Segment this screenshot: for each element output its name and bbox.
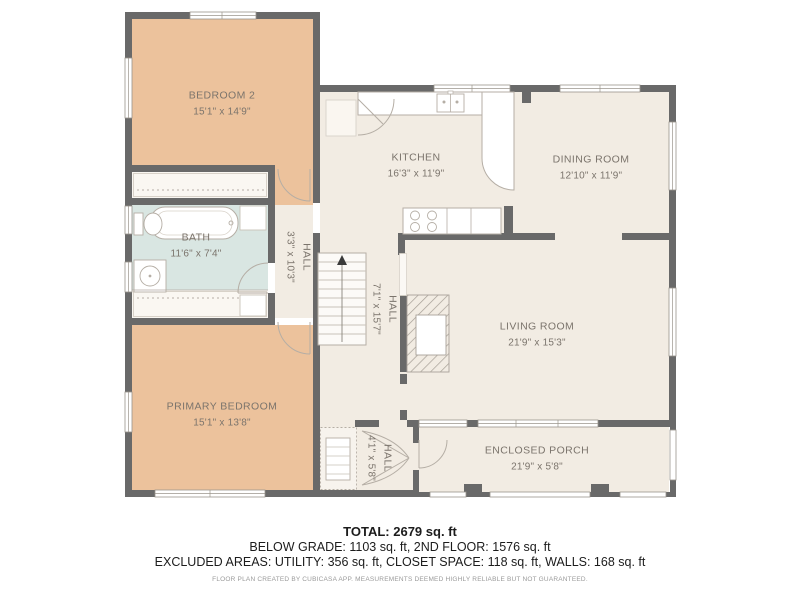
window [490, 492, 590, 497]
firebox [416, 315, 446, 355]
area-summary: TOTAL: 2679 sq. ft BELOW GRADE: 1103 sq.… [0, 524, 800, 583]
fireplace [407, 295, 449, 372]
kitchen-peninsula [482, 92, 514, 190]
excluded-area: EXCLUDED AREAS: UTILITY: 356 sq. ft, CLO… [0, 555, 800, 569]
room-name: PRIMARY BEDROOM [167, 400, 278, 416]
room-label-hall-upper: HALL 3'3" x 10'3" [283, 231, 314, 283]
room-label-bedroom2: BEDROOM 2 15'1" x 14'9" [189, 89, 256, 120]
room-dims: 12'10" x 11'9" [553, 168, 630, 183]
room-name: LIVING ROOM [500, 320, 574, 336]
entry-alcove [326, 100, 356, 136]
floors-area: BELOW GRADE: 1103 sq. ft, 2ND FLOOR: 157… [0, 540, 800, 554]
floor-plan-page: BEDROOM 2 15'1" x 14'9" KITCHEN 16'3" x … [0, 0, 800, 600]
room-label-dining: DINING ROOM 12'10" x 11'9" [553, 153, 630, 184]
room-dims: 3'3" x 10'3" [283, 231, 298, 283]
sink-faucet [448, 91, 453, 94]
window [620, 492, 666, 497]
room-dims: 21'9" x 15'3" [500, 335, 574, 350]
room-label-hall-main: HALL 7'1" x 15'7" [369, 283, 400, 335]
room-name: BATH [171, 231, 222, 247]
room-dims: 21'9" x 5'8" [485, 459, 589, 474]
cased-opening [400, 254, 407, 296]
closet-a-floor [132, 172, 268, 198]
room-label-hall-lower: HALL 4'1" x 5'8" [364, 435, 395, 481]
island-wall-stub [504, 206, 513, 234]
floor-plan-canvas [0, 0, 800, 600]
room-name: KITCHEN [388, 151, 445, 167]
room-label-primary: PRIMARY BEDROOM 15'1" x 13'8" [167, 400, 278, 431]
room-dims: 16'3" x 11'9" [388, 166, 445, 181]
room-dims: 11'6" x 7'4" [171, 246, 222, 261]
toilet-tank [134, 213, 143, 235]
bedroom2-vestibule-floor [275, 165, 313, 205]
window [430, 492, 466, 497]
room-name: DINING ROOM [553, 153, 630, 169]
room-name: HALL [379, 435, 395, 481]
porch-post [591, 484, 609, 497]
room-name: HALL [384, 283, 400, 335]
toilet-bowl [144, 213, 162, 235]
room-label-bath: BATH 11'6" x 7'4" [171, 231, 222, 262]
bath-closet [240, 295, 266, 316]
room-label-living: LIVING ROOM 21'9" x 15'3" [500, 320, 574, 351]
room-name: ENCLOSED PORCH [485, 444, 589, 460]
room-name: HALL [298, 231, 314, 283]
room-dims: 15'1" x 14'9" [189, 104, 256, 119]
room-label-kitchen: KITCHEN 16'3" x 11'9" [388, 151, 445, 182]
room-dims: 7'1" x 15'7" [369, 283, 384, 335]
total-area: TOTAL: 2679 sq. ft [0, 524, 800, 539]
room-dims: 4'1" x 5'8" [364, 435, 379, 481]
room-label-porch: ENCLOSED PORCH 21'9" x 5'8" [485, 444, 589, 475]
window [670, 430, 676, 480]
room-name: BEDROOM 2 [189, 89, 256, 105]
staircase [318, 253, 366, 345]
porch-post [464, 484, 482, 497]
room-dims: 15'1" x 13'8" [167, 415, 278, 430]
bath-closet [240, 206, 266, 230]
disclaimer: FLOOR PLAN CREATED BY CUBICASA APP. MEAS… [0, 576, 800, 583]
